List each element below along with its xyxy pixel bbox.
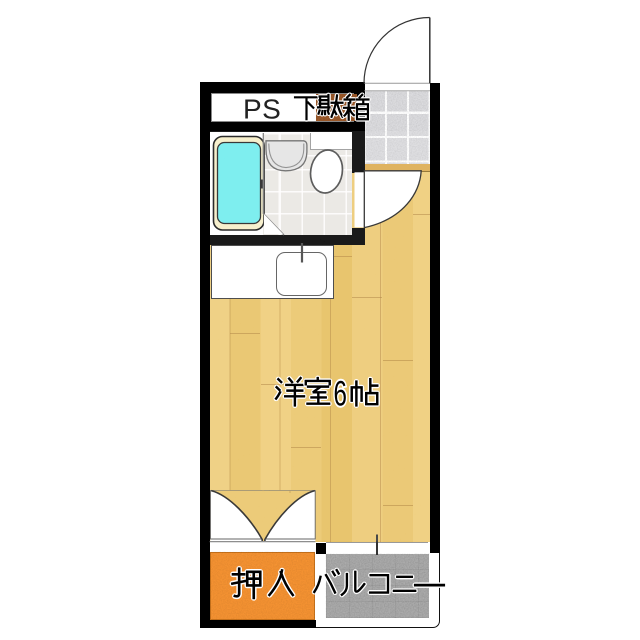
svg-text:6: 6: [334, 375, 347, 414]
svg-text:PS: PS: [243, 94, 281, 125]
